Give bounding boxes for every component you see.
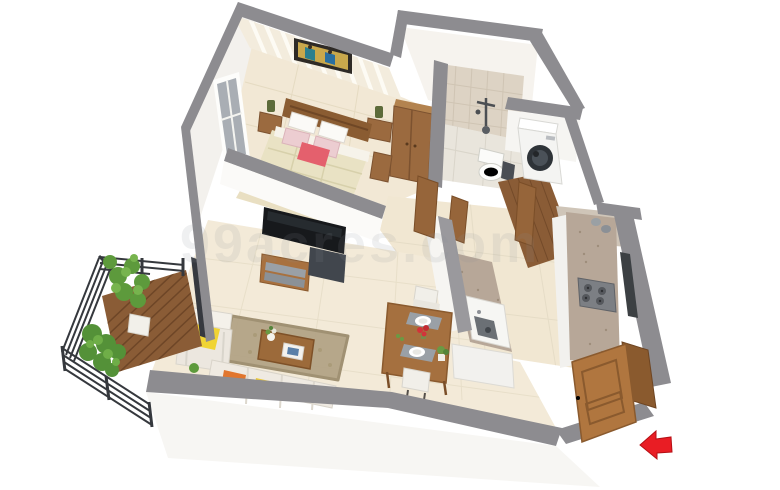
jar-2 [601, 225, 611, 233]
watermark-text: 99acres.com [180, 214, 540, 274]
jar-1 [591, 218, 601, 226]
northeast-wall [530, 29, 585, 112]
hob-counter [552, 212, 620, 368]
gas-hob [578, 278, 616, 312]
entrance-arrow-icon [640, 431, 672, 459]
living-plant [189, 363, 199, 373]
bedroom-dresser [370, 152, 392, 182]
white-planter [128, 314, 150, 336]
floor-plan-render: 99acres.com [0, 0, 780, 490]
door-knob [576, 396, 580, 400]
faucet [477, 310, 481, 314]
door-leaf [572, 344, 636, 442]
washing-machine [518, 118, 562, 184]
wardrobe [390, 106, 432, 184]
floor-plan-svg: 99acres.com [0, 0, 780, 490]
